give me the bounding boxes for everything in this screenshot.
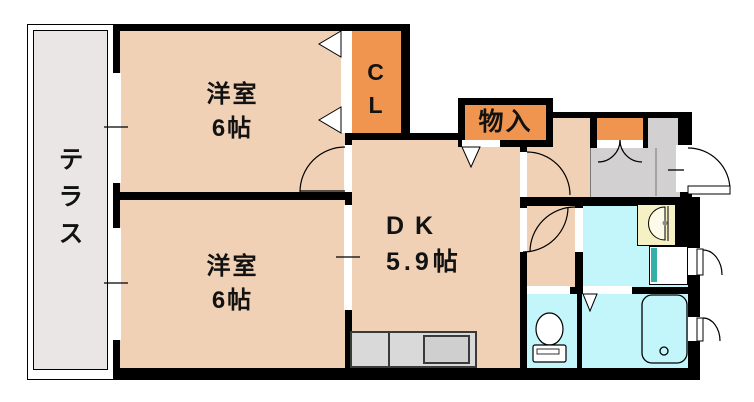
closet-char: C [367, 56, 386, 89]
toilet-door-opening [527, 286, 570, 294]
dk-name: DK [386, 208, 462, 244]
bedroom-bottom: 洋室 6帖 [120, 200, 345, 368]
ext-door-arc [703, 250, 722, 275]
bedroom-bottom-label: 洋室 6帖 [120, 200, 345, 368]
storage-label: 物入 [478, 105, 532, 140]
bathroom [582, 294, 688, 368]
floor-plan: テラス 洋室 6帖 洋室 6帖 C L DK 5.9帖 [0, 0, 754, 402]
corridor [527, 206, 575, 287]
washer-teal-edge [651, 248, 657, 282]
bath-door-opening [583, 286, 632, 294]
counter-divider [388, 333, 390, 366]
door-opening [575, 208, 583, 252]
hallway [527, 147, 553, 197]
storage-monoire: 物入 [465, 105, 546, 140]
door-opening [520, 152, 527, 197]
ext-door-opening [688, 248, 700, 275]
storage-door-track [462, 140, 500, 147]
dk-label: DK 5.9帖 [386, 208, 462, 280]
window-opening [112, 228, 121, 340]
wall-trim [692, 133, 700, 197]
closet-door-track [341, 31, 352, 133]
dk-size: 5.9帖 [386, 244, 462, 280]
room-size: 6帖 [212, 284, 253, 318]
closet-char: L [368, 89, 384, 122]
room-size: 6帖 [212, 112, 253, 146]
bedroom-top-label: 洋室 6帖 [120, 31, 345, 192]
ext-door-arc [703, 318, 720, 341]
entry-genkan [648, 118, 678, 148]
shoe-closet-door-track [597, 140, 643, 148]
room-name: 洋室 [207, 250, 259, 284]
entry-genkan [590, 148, 680, 197]
duct-space [675, 202, 700, 248]
washbasin-icon [637, 204, 676, 246]
bedroom-top: 洋室 6帖 [120, 31, 345, 192]
shoe-closet [597, 118, 643, 140]
front-door-opening [676, 145, 692, 192]
room-name: 洋室 [207, 78, 259, 112]
closet-cl-label: C L [352, 31, 401, 133]
terrace-label: テラス [52, 146, 86, 257]
kitchen-sink [423, 335, 470, 364]
closet-cl: C L [352, 31, 401, 133]
hallway [553, 118, 590, 197]
washing-machine-pan [649, 246, 688, 285]
sliding-door-opening [344, 205, 352, 310]
toilet-room [527, 294, 577, 368]
door-opening [520, 208, 527, 252]
window-opening [112, 73, 121, 183]
ext-door-opening [688, 317, 700, 341]
door-opening [344, 145, 352, 192]
